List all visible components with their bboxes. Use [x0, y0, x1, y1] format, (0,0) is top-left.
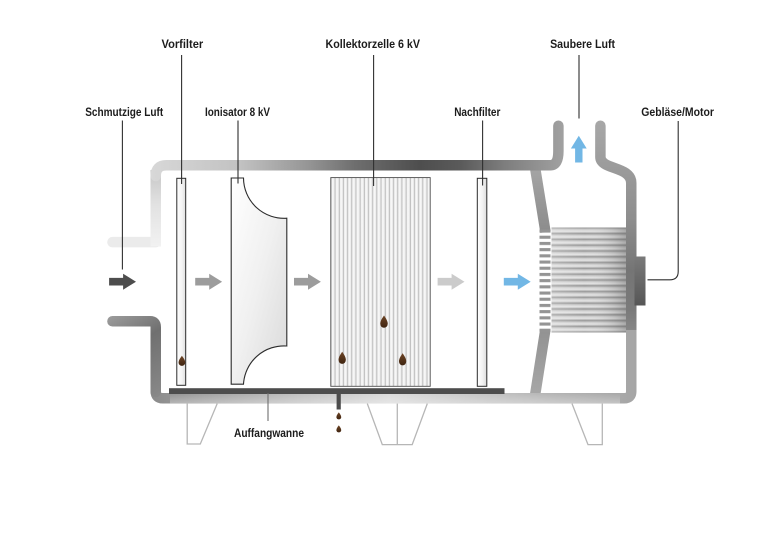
- svg-text:Auffangwanne: Auffangwanne: [234, 426, 304, 440]
- svg-text:Ionisator 8 kV: Ionisator 8 kV: [205, 105, 271, 119]
- svg-text:Schmutzige Luft: Schmutzige Luft: [85, 105, 163, 119]
- svg-text:Gebläse/Motor: Gebläse/Motor: [641, 105, 714, 119]
- svg-text:Kollektorzelle 6 kV: Kollektorzelle 6 kV: [326, 37, 421, 51]
- svg-text:Saubere Luft: Saubere Luft: [550, 37, 615, 51]
- svg-text:Nachfilter: Nachfilter: [454, 105, 500, 119]
- svg-text:Vorfilter: Vorfilter: [162, 37, 204, 51]
